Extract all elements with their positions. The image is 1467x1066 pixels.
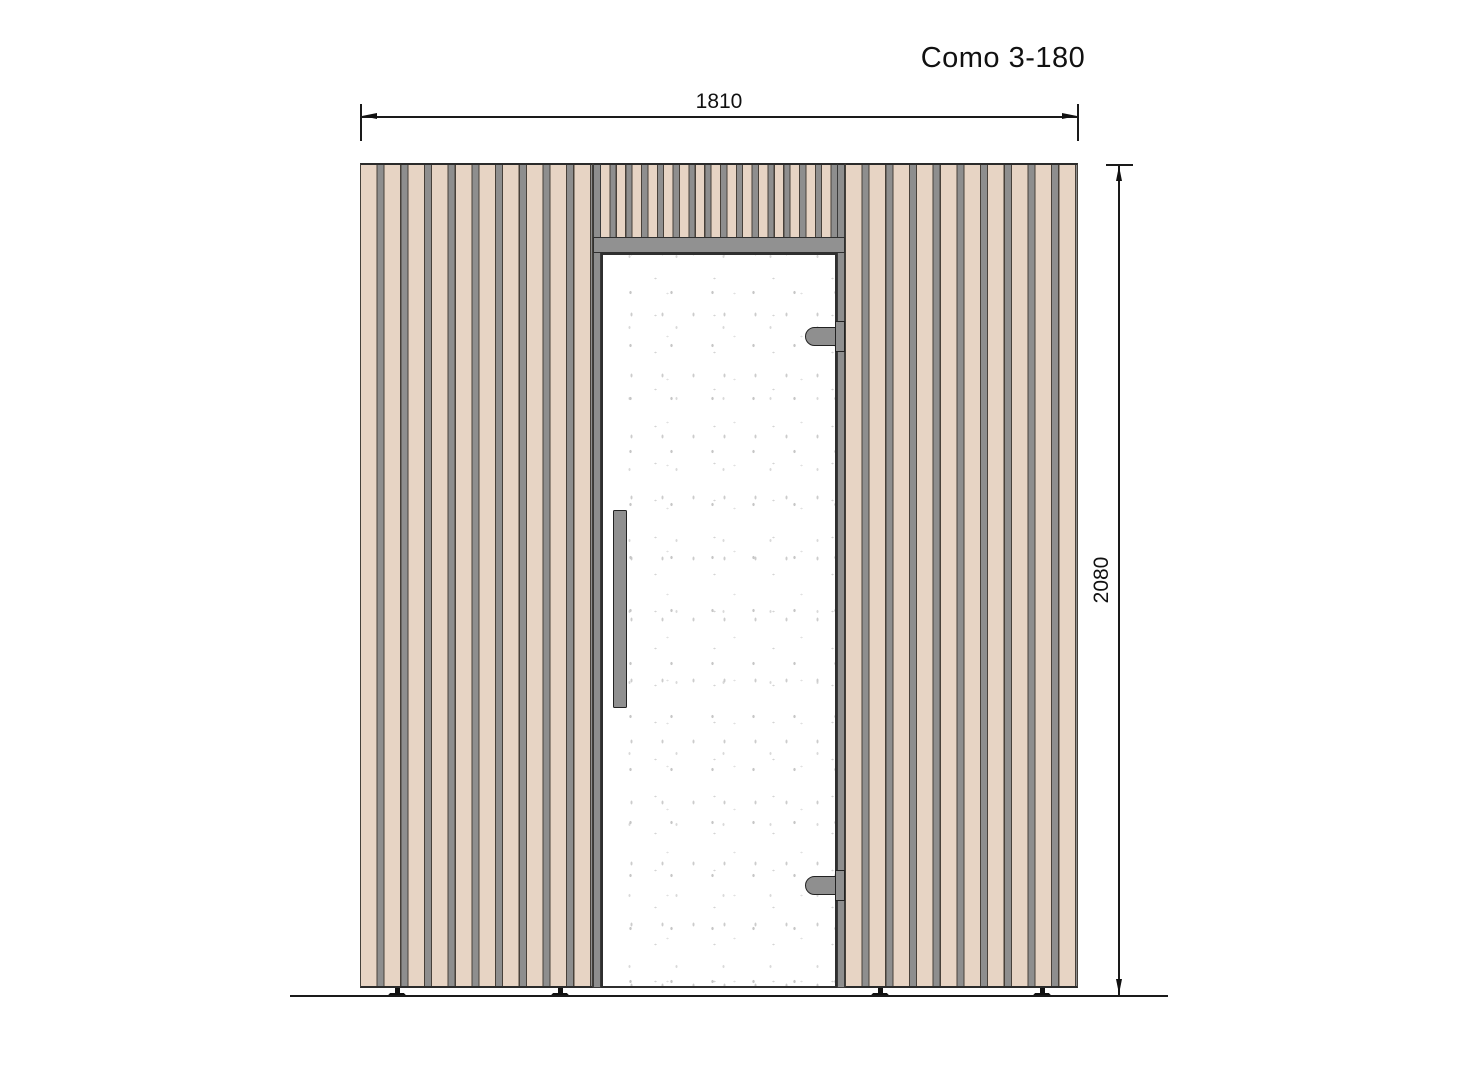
hinge-barrel-icon (805, 876, 837, 895)
door-handle (613, 510, 627, 708)
door-jamb-left (593, 163, 601, 988)
right-wall-slats (845, 163, 1078, 988)
width-extension-line-left (360, 104, 362, 141)
dim-arrow-down-icon (1116, 979, 1122, 994)
dim-arrow-right-icon (1062, 113, 1077, 119)
foot-stem (558, 988, 563, 993)
width-dimension-line (361, 116, 1078, 118)
left-wall-slats (360, 163, 593, 988)
door-jamb-right (837, 163, 845, 988)
foot-stem (1040, 988, 1045, 993)
dim-arrow-up-icon (1116, 166, 1122, 181)
height-dimension-line (1118, 165, 1120, 995)
height-dimension-label: 2080 (1090, 480, 1114, 680)
door-header-beam (593, 237, 845, 253)
ground-line (290, 995, 1168, 997)
hinge-plate (835, 870, 845, 901)
technical-drawing-canvas: Como 3-180 1810 2080 (0, 0, 1467, 1066)
foot-stem (878, 988, 883, 993)
foot-stem (395, 988, 400, 993)
above-door-slats (601, 163, 837, 237)
hinge-barrel-icon (805, 327, 837, 346)
dim-arrow-left-icon (362, 113, 377, 119)
glass-door-panel (601, 253, 837, 988)
width-dimension-label: 1810 (619, 90, 819, 114)
width-extension-line-right (1077, 104, 1079, 141)
door-assembly (593, 163, 845, 988)
drawing-title: Como 3-180 (868, 42, 1138, 75)
hinge-plate (835, 321, 845, 352)
